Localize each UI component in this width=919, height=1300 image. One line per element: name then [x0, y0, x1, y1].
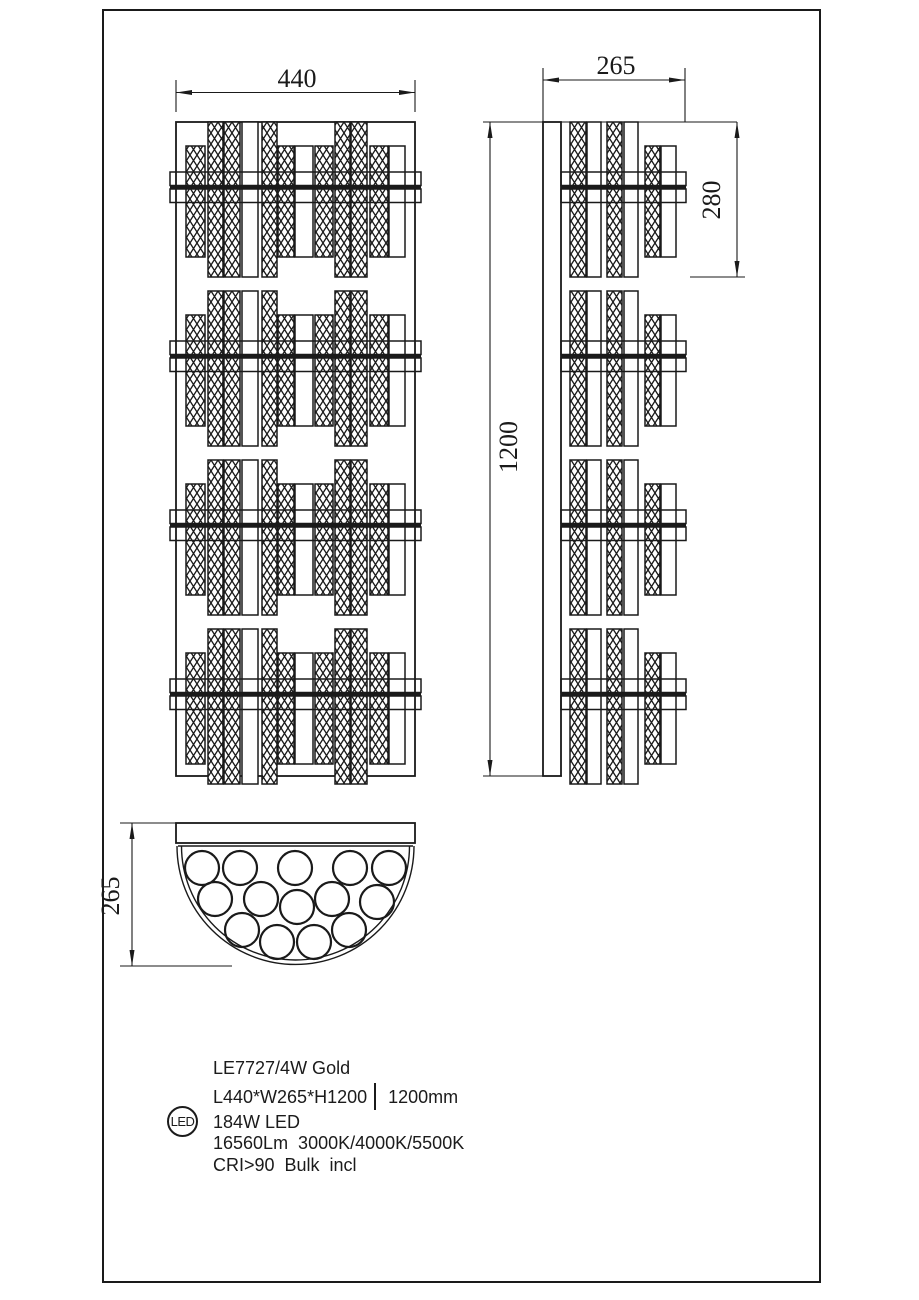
drawing-sheet: 440 265 1200 280: [0, 0, 919, 1300]
side-cluster-1: [561, 122, 686, 277]
front-cluster-2: [170, 291, 421, 446]
front-cluster-3: [170, 460, 421, 615]
dim-top-view-depth: 265: [96, 823, 232, 966]
front-cluster-1: [170, 122, 421, 277]
dim-label-fixture-height: 1200: [494, 421, 523, 473]
top-view-shade-inner: [182, 846, 410, 960]
side-elevation-view: [543, 122, 686, 784]
technical-drawing: 440 265 1200 280: [0, 0, 919, 1300]
top-view-backplate: [176, 823, 415, 843]
led-badge: LED: [167, 1106, 198, 1137]
top-view-shade-outer: [177, 846, 414, 964]
dim-label-top-view-depth: 265: [96, 877, 125, 916]
spec-size-line: L440*W265*H1200 1200mm: [213, 1083, 458, 1110]
dim-label-side-depth: 265: [597, 51, 636, 80]
top-plan-view: [176, 823, 415, 964]
side-cluster-3: [561, 460, 686, 615]
front-cluster-4: [170, 629, 421, 784]
dim-label-front-width: 440: [278, 64, 317, 93]
side-mounting-plate: [543, 122, 561, 776]
dim-label-cluster-height: 280: [697, 181, 726, 220]
side-cluster-4: [561, 629, 686, 784]
side-cluster-2: [561, 291, 686, 446]
spec-model: LE7727/4W Gold: [213, 1058, 350, 1078]
top-view-lamp-circles: [185, 851, 406, 959]
dim-side-depth: 265: [543, 51, 685, 122]
spec-height-note: 1200mm: [388, 1087, 458, 1107]
divider-bar: [374, 1083, 376, 1110]
led-badge-label: LED: [171, 1114, 195, 1129]
dim-front-width: 440: [176, 64, 415, 112]
spec-output: 16560Lm 3000K/4000K/5500K: [213, 1133, 464, 1153]
dim-cluster-height: 280: [690, 122, 745, 277]
spec-cri: CRI>90 Bulk incl: [213, 1155, 357, 1175]
spec-wattage: 184W LED: [213, 1112, 300, 1132]
front-elevation-view: [170, 122, 421, 784]
spec-size: L440*W265*H1200: [213, 1087, 367, 1107]
